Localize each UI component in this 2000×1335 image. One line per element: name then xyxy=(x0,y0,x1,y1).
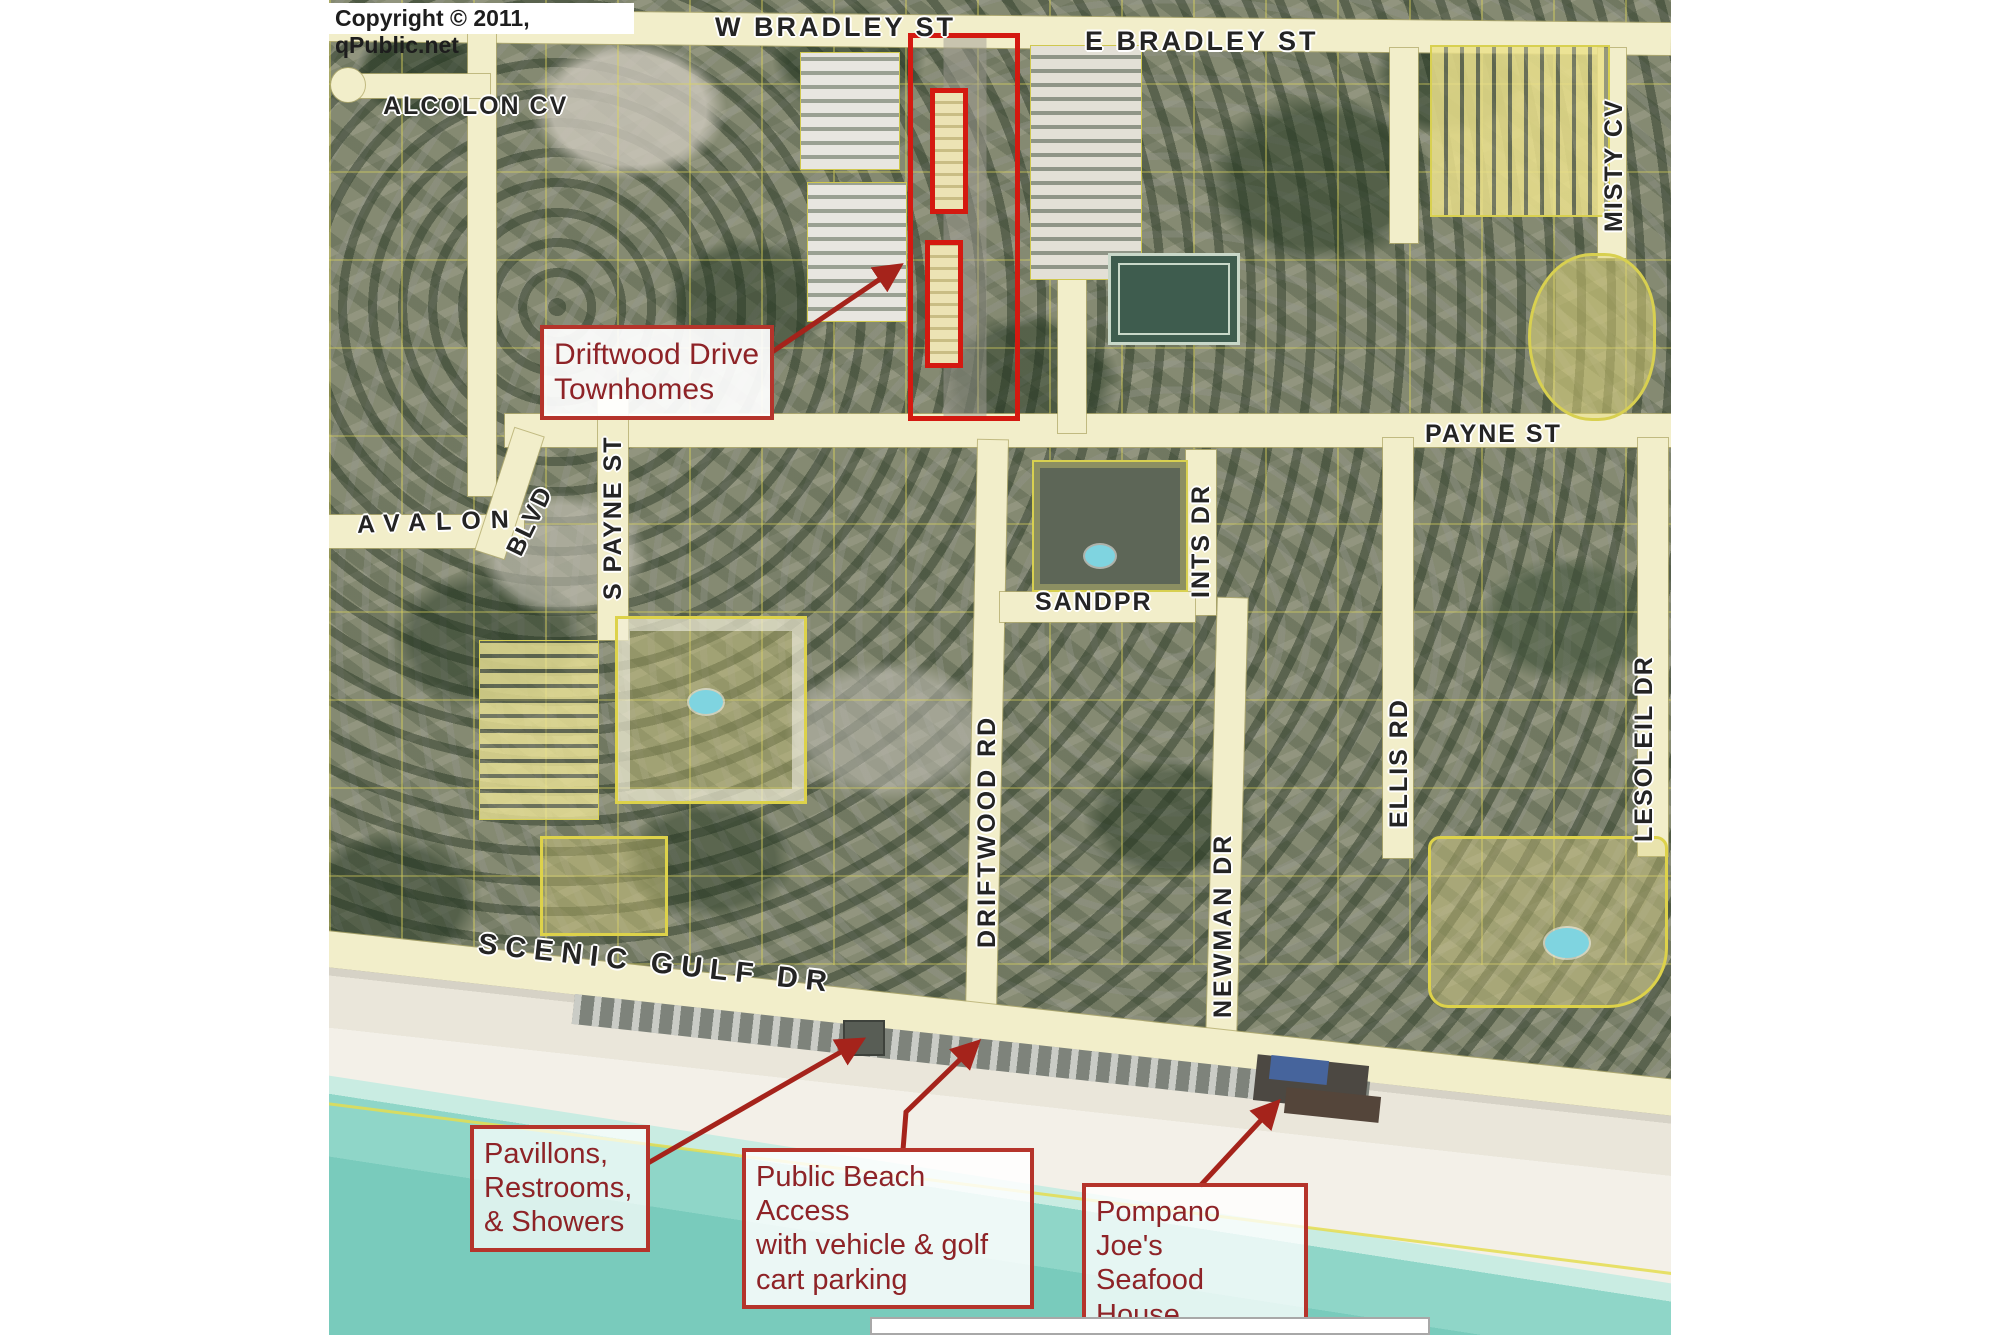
callout-beach-access-line1: Public Beach Access xyxy=(756,1160,1020,1228)
building-misty-cv-complex xyxy=(1430,45,1610,217)
street-label-ellis-rd: ELLIS RD xyxy=(1385,698,1414,828)
callout-pavilions-line3: & Showers xyxy=(484,1205,636,1239)
building-sandprints-complex xyxy=(1032,460,1188,592)
callout-pavilions-line2: Restrooms, xyxy=(484,1171,636,1205)
callout-driftwood-townhomes: Driftwood Drive Townhomes xyxy=(540,325,774,420)
building-rows-east xyxy=(1030,45,1142,280)
road-ellis-rd-north xyxy=(1390,48,1418,243)
resort-pool xyxy=(1545,928,1589,958)
street-label-misty-cv: MISTY CV xyxy=(1600,98,1629,232)
beach-pavilion-structure xyxy=(843,1020,885,1056)
street-label-w-bradley-st: W BRADLEY ST xyxy=(715,12,956,43)
callout-pompano-joes: Pompano Joe's Seafood House & Beach Bar xyxy=(1082,1183,1308,1335)
building-condo-west-2 xyxy=(540,836,668,936)
callout-beach-access-line3: cart parking xyxy=(756,1263,1020,1297)
parking-rows-yellow xyxy=(479,640,599,820)
building-townhome-rows-west xyxy=(800,52,900,170)
callout-driftwood-line1: Driftwood Drive xyxy=(554,337,760,372)
building-circle-court-complex xyxy=(1528,253,1656,421)
callout-beach-access: Public Beach Access with vehicle & golf … xyxy=(742,1148,1034,1309)
street-label-payne-st: PAYNE ST xyxy=(1425,420,1562,449)
condo-west-pool xyxy=(689,690,723,714)
aerial-map: W BRADLEY ST E BRADLEY ST ALCOLON CV MIS… xyxy=(329,0,1671,1335)
townhome-building-outline-south xyxy=(925,240,963,368)
street-label-s-payne-st: S PAYNE ST xyxy=(599,436,628,601)
building-townhome-rows-west-2 xyxy=(807,182,907,322)
bottom-cutoff-box xyxy=(870,1317,1430,1335)
callout-driftwood-line2: Townhomes xyxy=(554,372,760,407)
copyright-label: Copyright © 2011, qPublic.net xyxy=(329,3,634,34)
road-alcolon-culdesac xyxy=(331,68,365,102)
callout-pompano-line1: Pompano Joe's xyxy=(1096,1195,1294,1263)
sandprints-pool xyxy=(1085,545,1115,567)
tennis-courts xyxy=(1108,253,1240,345)
street-label-lesoleil-dr: LESOLEIL DR xyxy=(1630,655,1659,842)
street-label-newman-dr: NEWMAN DR xyxy=(1209,833,1238,1018)
street-label-sandprints-dr-h: SANDPR xyxy=(1035,588,1153,617)
map-page: W BRADLEY ST E BRADLEY ST ALCOLON CV MIS… xyxy=(0,0,2000,1335)
street-label-sandprints-dr-v: INTS DR xyxy=(1187,484,1216,598)
building-beach-resort xyxy=(1428,836,1668,1008)
street-label-alcolon-cv: ALCOLON CV xyxy=(383,92,568,121)
callout-pavilions-line1: Pavillons, xyxy=(484,1137,636,1171)
street-label-e-bradley-st: E BRADLEY ST xyxy=(1085,26,1319,57)
street-label-avalon: AVALON xyxy=(357,505,520,540)
street-label-driftwood-rd: DRIFTWOOD RD xyxy=(973,715,1002,948)
callout-beach-access-line2: with vehicle & golf xyxy=(756,1228,1020,1262)
townhome-building-outline-north xyxy=(930,88,968,214)
callout-pavilions: Pavillons, Restrooms, & Showers xyxy=(470,1125,650,1252)
